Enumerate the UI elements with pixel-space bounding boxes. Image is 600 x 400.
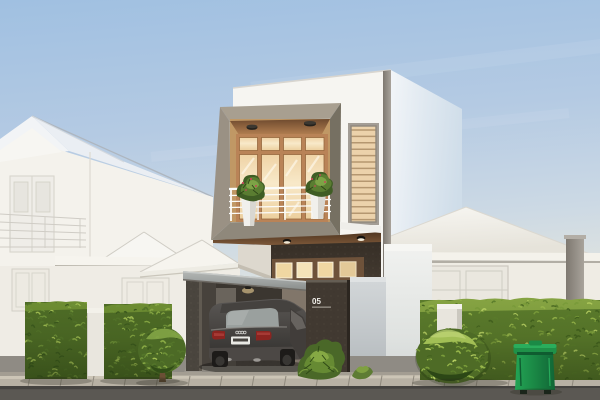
svg-text:05: 05: [312, 297, 321, 306]
